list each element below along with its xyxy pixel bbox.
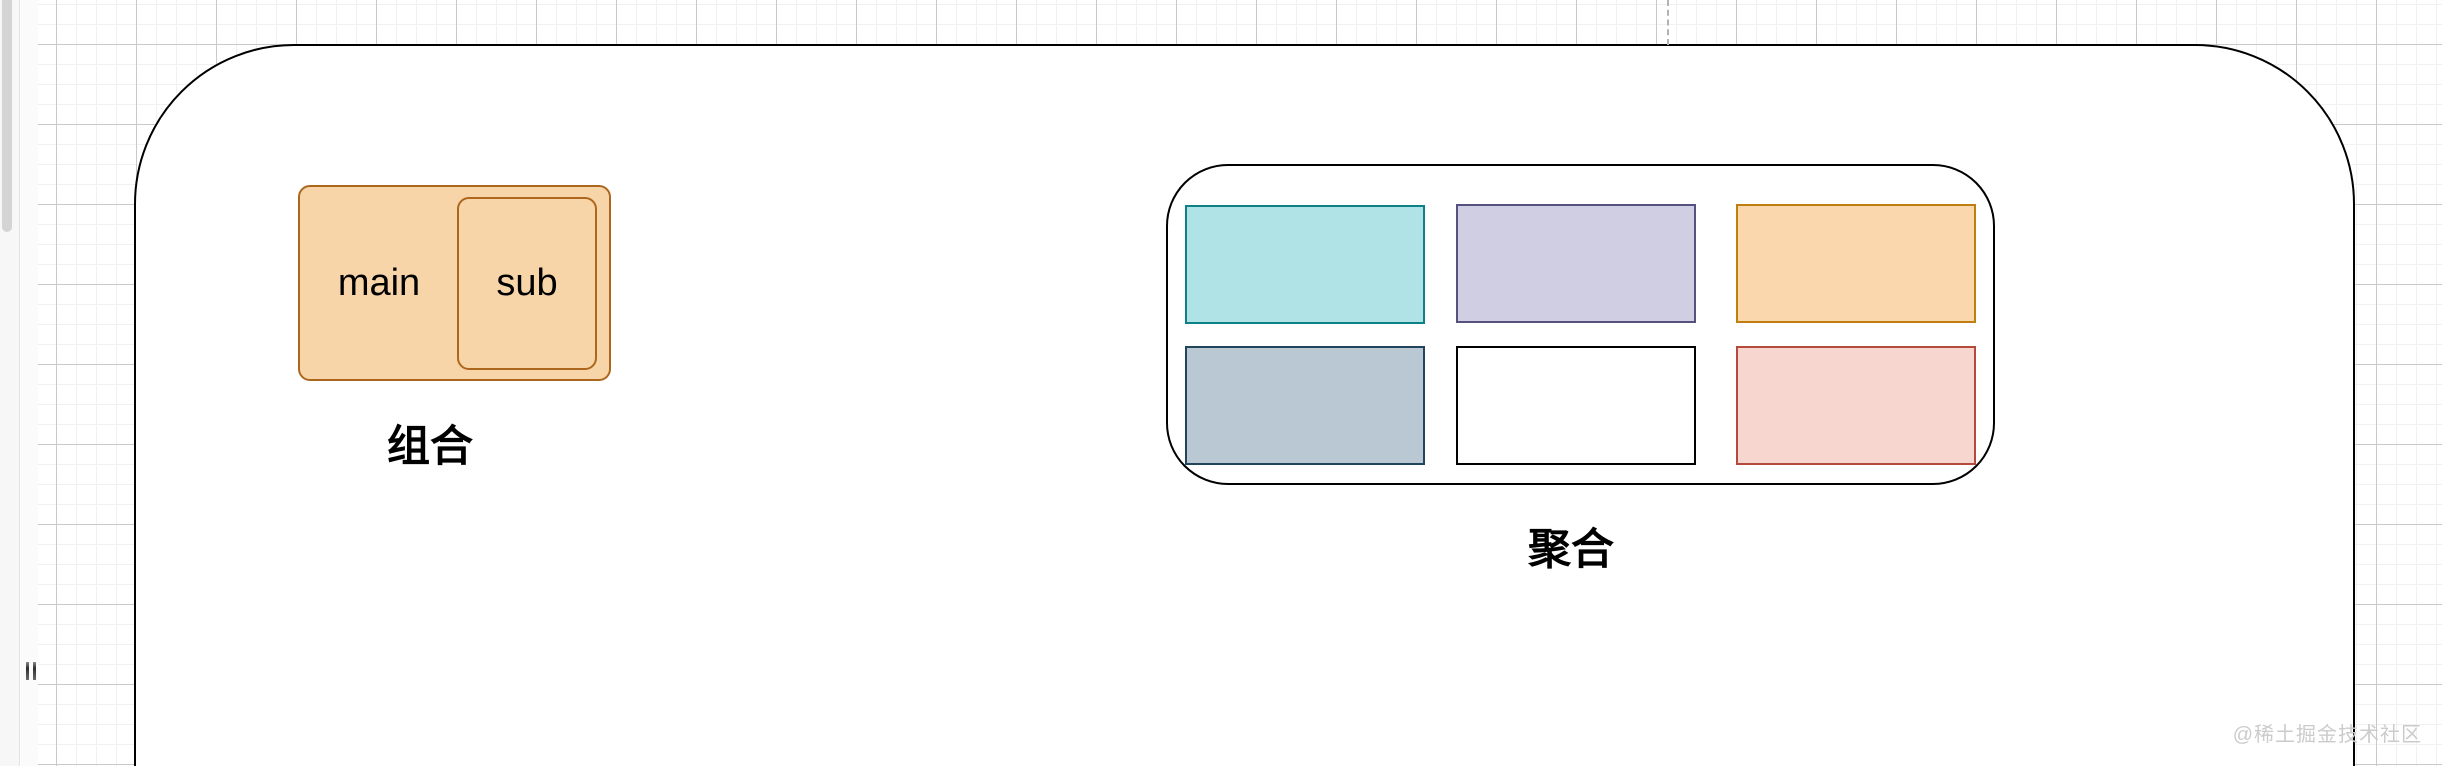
composition-box: main sub: [298, 185, 611, 381]
composition-sub-label: sub: [496, 262, 557, 305]
watermark-text: @稀土掘金技术社区: [2233, 718, 2422, 747]
screenshot-stage: main sub 组合 聚合 @稀土掘金技术社区: [0, 0, 2442, 766]
aggregation-blue-gray-cell: [1185, 346, 1425, 465]
aggregation-box: [1166, 164, 1995, 485]
drawing-canvas-grid: main sub 组合 聚合: [38, 0, 2442, 766]
composition-caption: 组合: [268, 412, 592, 474]
side-panel-edge: [21, 0, 38, 766]
aggregation-orange-cell: [1736, 204, 1976, 323]
aggregation-caption: 聚合: [1409, 515, 1733, 577]
composition-main-label: main: [300, 187, 458, 379]
aggregation-purple-cell: [1456, 204, 1696, 323]
vertical-scrollbar-track[interactable]: [0, 0, 20, 766]
vertical-scrollbar-thumb[interactable]: [2, 0, 12, 232]
aggregation-pink-cell: [1736, 346, 1976, 465]
panel-drag-handle-icon[interactable]: [26, 662, 36, 680]
aggregation-teal-cell: [1185, 205, 1425, 324]
page-boundary-dashed-line: [1667, 0, 1669, 45]
aggregation-white-cell: [1456, 346, 1696, 465]
composition-sub-box: sub: [457, 197, 597, 370]
